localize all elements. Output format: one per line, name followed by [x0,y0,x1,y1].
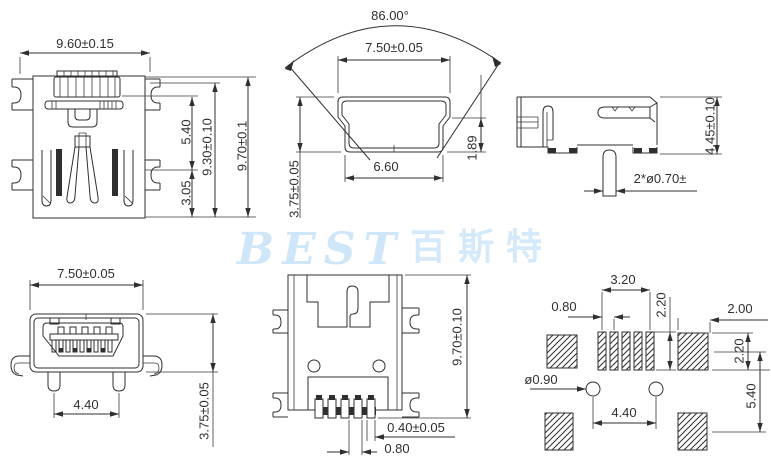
dim-label-c-pin: 2*ø0.70± [634,171,687,186]
dim-label-b-angle: 86.00° [371,8,409,23]
dim-label-a-slot-height: 5.40 [179,119,194,144]
dim-label-f-row-span: 5.40 [744,383,759,408]
dim-label-a-inner-height: 9.30±0.10 [200,118,215,176]
dim-label-f-hole-span: 4.40 [611,405,636,420]
dim-label-b-bottom-width: 6.60 [373,159,398,174]
dim-label-d-height: 3.75±0.05 [197,382,212,440]
view-front-top: 9.60±0.15 [12,36,256,218]
dim-label-a-lower-height: 3.05 [179,180,194,205]
pcb-pad [545,413,573,450]
dim-label-c-height: 4.45±0.10 [703,97,718,155]
pcb-pad [622,332,630,370]
dim-label-f-pad-height: 2.20 [654,292,669,317]
view-pcb-footprint: 3.20 0.80 2.20 2.00 2.20 5.40 ø0.90 4.40 [524,272,770,450]
drawing-sheet: BEST 百斯特 9.60±0.15 [0,0,771,465]
pcb-pad [610,332,618,370]
pcb-pad [547,335,577,368]
via-hole [649,382,663,396]
pcb-pad [646,332,654,370]
pcb-pad [634,332,642,370]
watermark: BEST 百斯特 [235,224,554,275]
dim-label-e-pitch: 0.80 [384,441,409,456]
dim-label-f-hole: ø0.90 [524,372,557,387]
dim-label-b-height: 3.75±0.05 [287,160,302,218]
dim-label-a-overall-height: 9.70±0.1 [235,121,250,172]
view-bottom: 9.70±0.10 0.40±0.05 0.80 [273,275,471,456]
watermark-latin: BEST [235,224,404,275]
dim-label-a-width: 9.60±0.15 [56,36,114,51]
dim-label-b-lip: 1.89 [465,135,480,160]
view-section: 86.00° 7.50±0.05 6.60 3.75±0.05 1.89 [285,8,501,218]
pcb-pad [678,413,707,450]
dim-label-f-pad-height2: 2.20 [732,338,747,363]
dim-label-f-pad-width: 2.00 [727,301,752,316]
drawing-canvas: BEST 百斯特 9.60±0.15 [0,0,771,465]
dim-label-d-span: 4.40 [73,397,98,412]
view-front-bottom: 7.50±0.05 4.40 3.75±0.05 [11,266,218,447]
via-hole [586,382,600,396]
watermark-cjk: 百斯特 [410,227,554,268]
dim-label-d-width: 7.50±0.05 [57,266,115,281]
pcb-pad [678,333,708,370]
dim-label-f-pitch: 0.80 [551,299,576,314]
dim-label-e-pin-width: 0.40±0.05 [387,420,445,435]
view-side: 4.45±0.10 2*ø0.70± [517,97,722,196]
dim-label-e-height: 9.70±0.10 [450,308,465,366]
dim-label-b-top-width: 7.50±0.05 [365,40,423,55]
dim-label-f-group-width: 3.20 [610,272,635,287]
pcb-pad [598,332,606,370]
